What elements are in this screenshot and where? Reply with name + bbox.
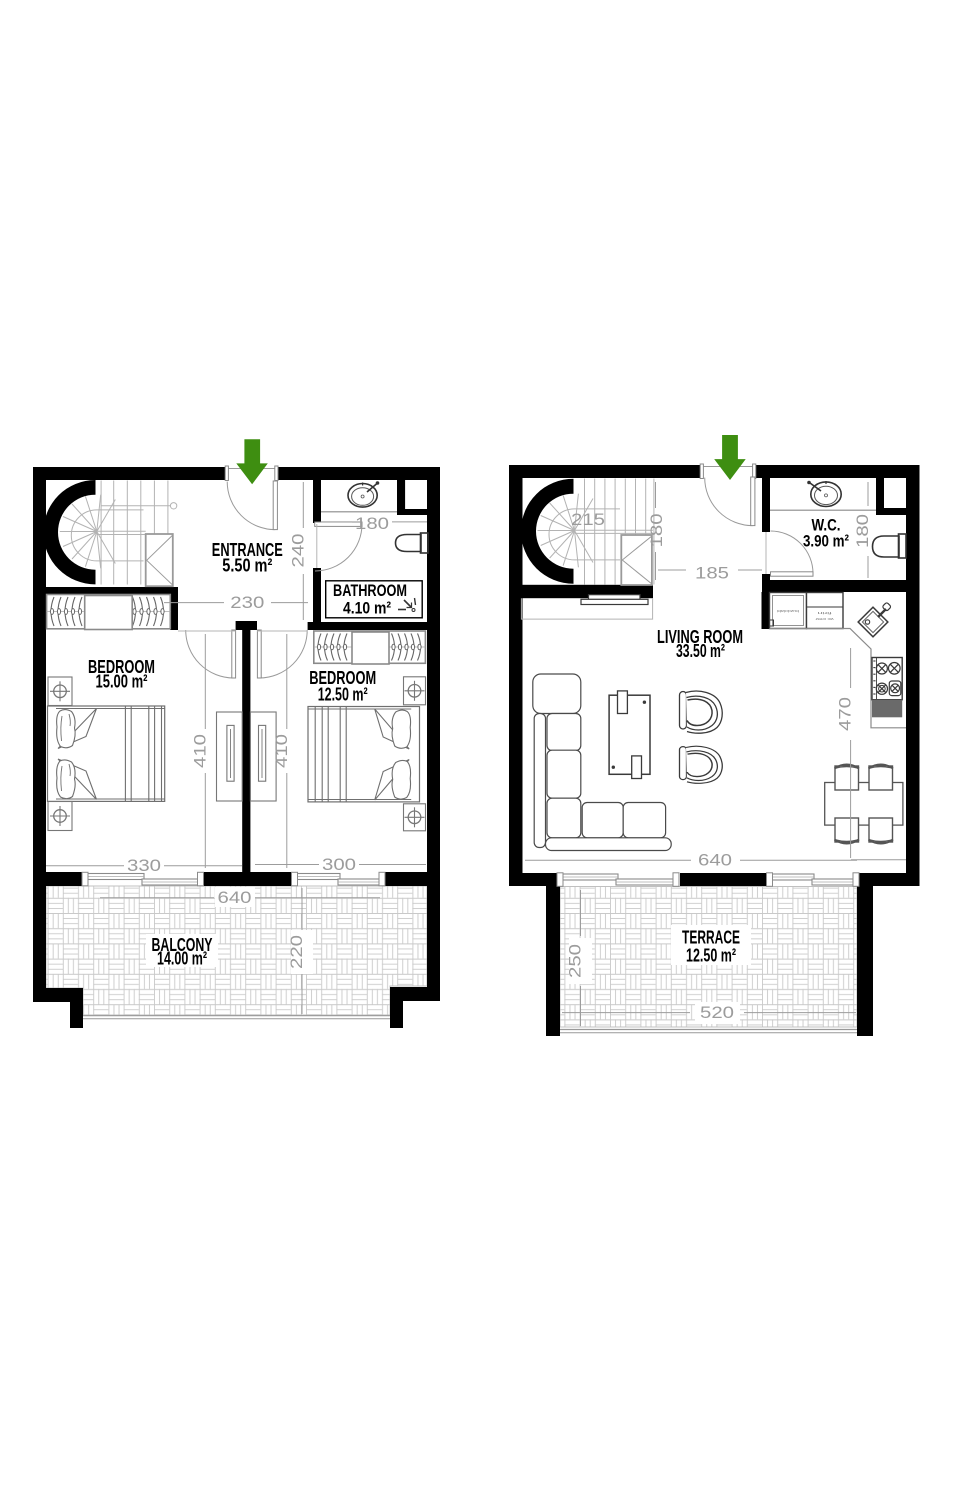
svg-text:14.00 m²: 14.00 m²	[157, 948, 207, 969]
svg-text:12.50 m²: 12.50 m²	[686, 945, 736, 966]
svg-text:330: 330	[127, 857, 161, 875]
svg-text:15.00 m²: 15.00 m²	[96, 671, 148, 692]
svg-text:410: 410	[273, 734, 291, 768]
svg-text:185: 185	[695, 565, 729, 583]
svg-text:4.10 m²: 4.10 m²	[343, 600, 391, 618]
svg-text:520: 520	[700, 1004, 734, 1022]
svg-text:250: 250	[567, 944, 585, 978]
svg-text:180: 180	[355, 515, 389, 533]
svg-text:220: 220	[288, 935, 306, 969]
svg-text:BATHROOM: BATHROOM	[333, 582, 407, 600]
svg-text:180: 180	[854, 514, 872, 548]
svg-text:470: 470	[837, 697, 855, 731]
svg-text:12.50 m²: 12.50 m²	[318, 684, 368, 705]
svg-text:wc cmsr: wc cmsr	[815, 617, 834, 622]
svg-text:215: 215	[571, 511, 605, 529]
svg-text:firin: firin	[818, 611, 832, 616]
svg-text:230: 230	[230, 594, 264, 612]
svg-text:5.50 m²: 5.50 m²	[222, 555, 272, 576]
svg-text:3.90 m²: 3.90 m²	[803, 532, 849, 551]
svg-text:640: 640	[698, 852, 732, 870]
svg-text:640: 640	[218, 889, 252, 907]
svg-text:240: 240	[290, 534, 308, 568]
svg-text:buzdolabi: buzdolabi	[777, 609, 799, 614]
svg-text:300: 300	[322, 856, 356, 874]
svg-text:180: 180	[648, 513, 666, 547]
svg-text:33.50 m²: 33.50 m²	[676, 640, 725, 661]
svg-text:410: 410	[191, 734, 209, 768]
